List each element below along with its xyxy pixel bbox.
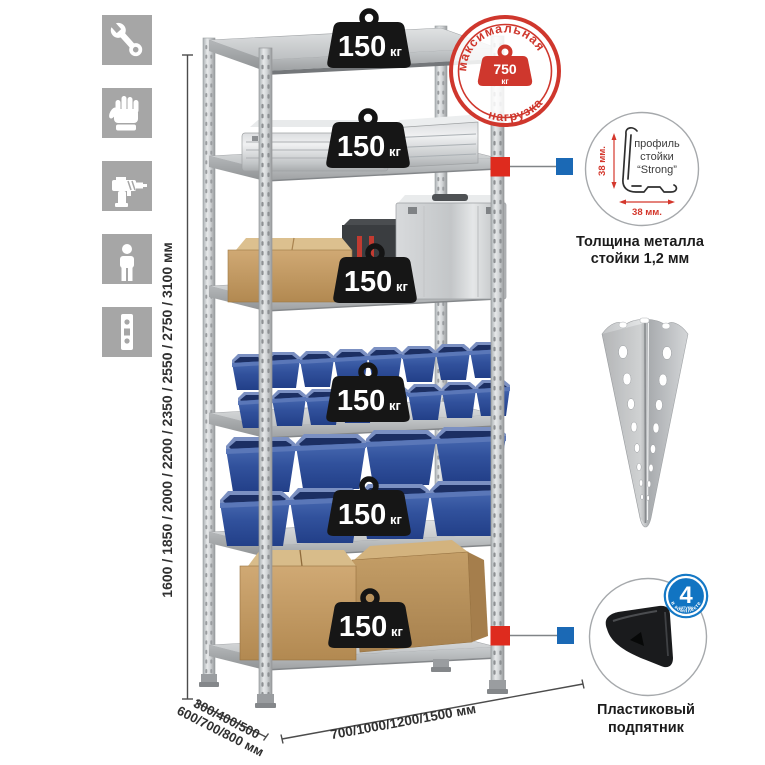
stamp-unit: кг [501, 77, 509, 86]
infographic-svg: 150 кг 150 кг 150 кг 150 кг 150 кг 150 к… [0, 0, 765, 765]
load-unit: кг [391, 624, 404, 639]
load-unit: кг [389, 398, 402, 413]
profile-caption-2: стойки 1,2 мм [591, 251, 690, 267]
load-unit: кг [396, 279, 409, 294]
rack-profile-icon [102, 307, 152, 357]
load-value: 150 [337, 131, 385, 163]
load-value: 150 [338, 499, 386, 531]
blue-marker [556, 158, 573, 175]
load-unit: кг [390, 512, 403, 527]
stamp-value: 750 [493, 61, 517, 77]
foot-caption-2: подпятник [608, 720, 685, 736]
load-value: 150 [337, 385, 385, 417]
load-unit: кг [390, 44, 403, 59]
product-infographic: 150 кг 150 кг 150 кг 150 кг 150 кг 150 к… [0, 0, 765, 765]
person-icon [102, 234, 152, 284]
profile-label-3: “Strong” [637, 164, 677, 176]
wrench-icon [102, 15, 152, 65]
load-value: 150 [339, 611, 387, 643]
foot-caption-1: Пластиковый [597, 702, 695, 718]
dim-38mm-vertical: 38 мм. [597, 146, 608, 176]
profile-label-1: профиль [634, 138, 680, 150]
red-marker [491, 157, 511, 177]
height-dimension-label: 1600 / 1850 / 2000 / 2200 / 2350 / 2550 … [159, 242, 175, 597]
drill-icon [102, 161, 152, 211]
profile-label-2: стойки [640, 151, 674, 163]
dim-38mm-horizontal: 38 мм. [632, 207, 662, 218]
profile-caption-1: Толщина металла [576, 234, 705, 250]
blue-marker [557, 627, 574, 644]
load-unit: кг [389, 144, 402, 159]
load-value: 150 [344, 266, 392, 298]
count-badge: 4 штуки в комплекте [664, 574, 709, 619]
red-marker [491, 626, 511, 646]
gloves-icon [102, 88, 152, 138]
load-value: 150 [338, 31, 386, 63]
foot-callout: 4 штуки в комплекте Пластиковый подпятни… [590, 574, 709, 736]
